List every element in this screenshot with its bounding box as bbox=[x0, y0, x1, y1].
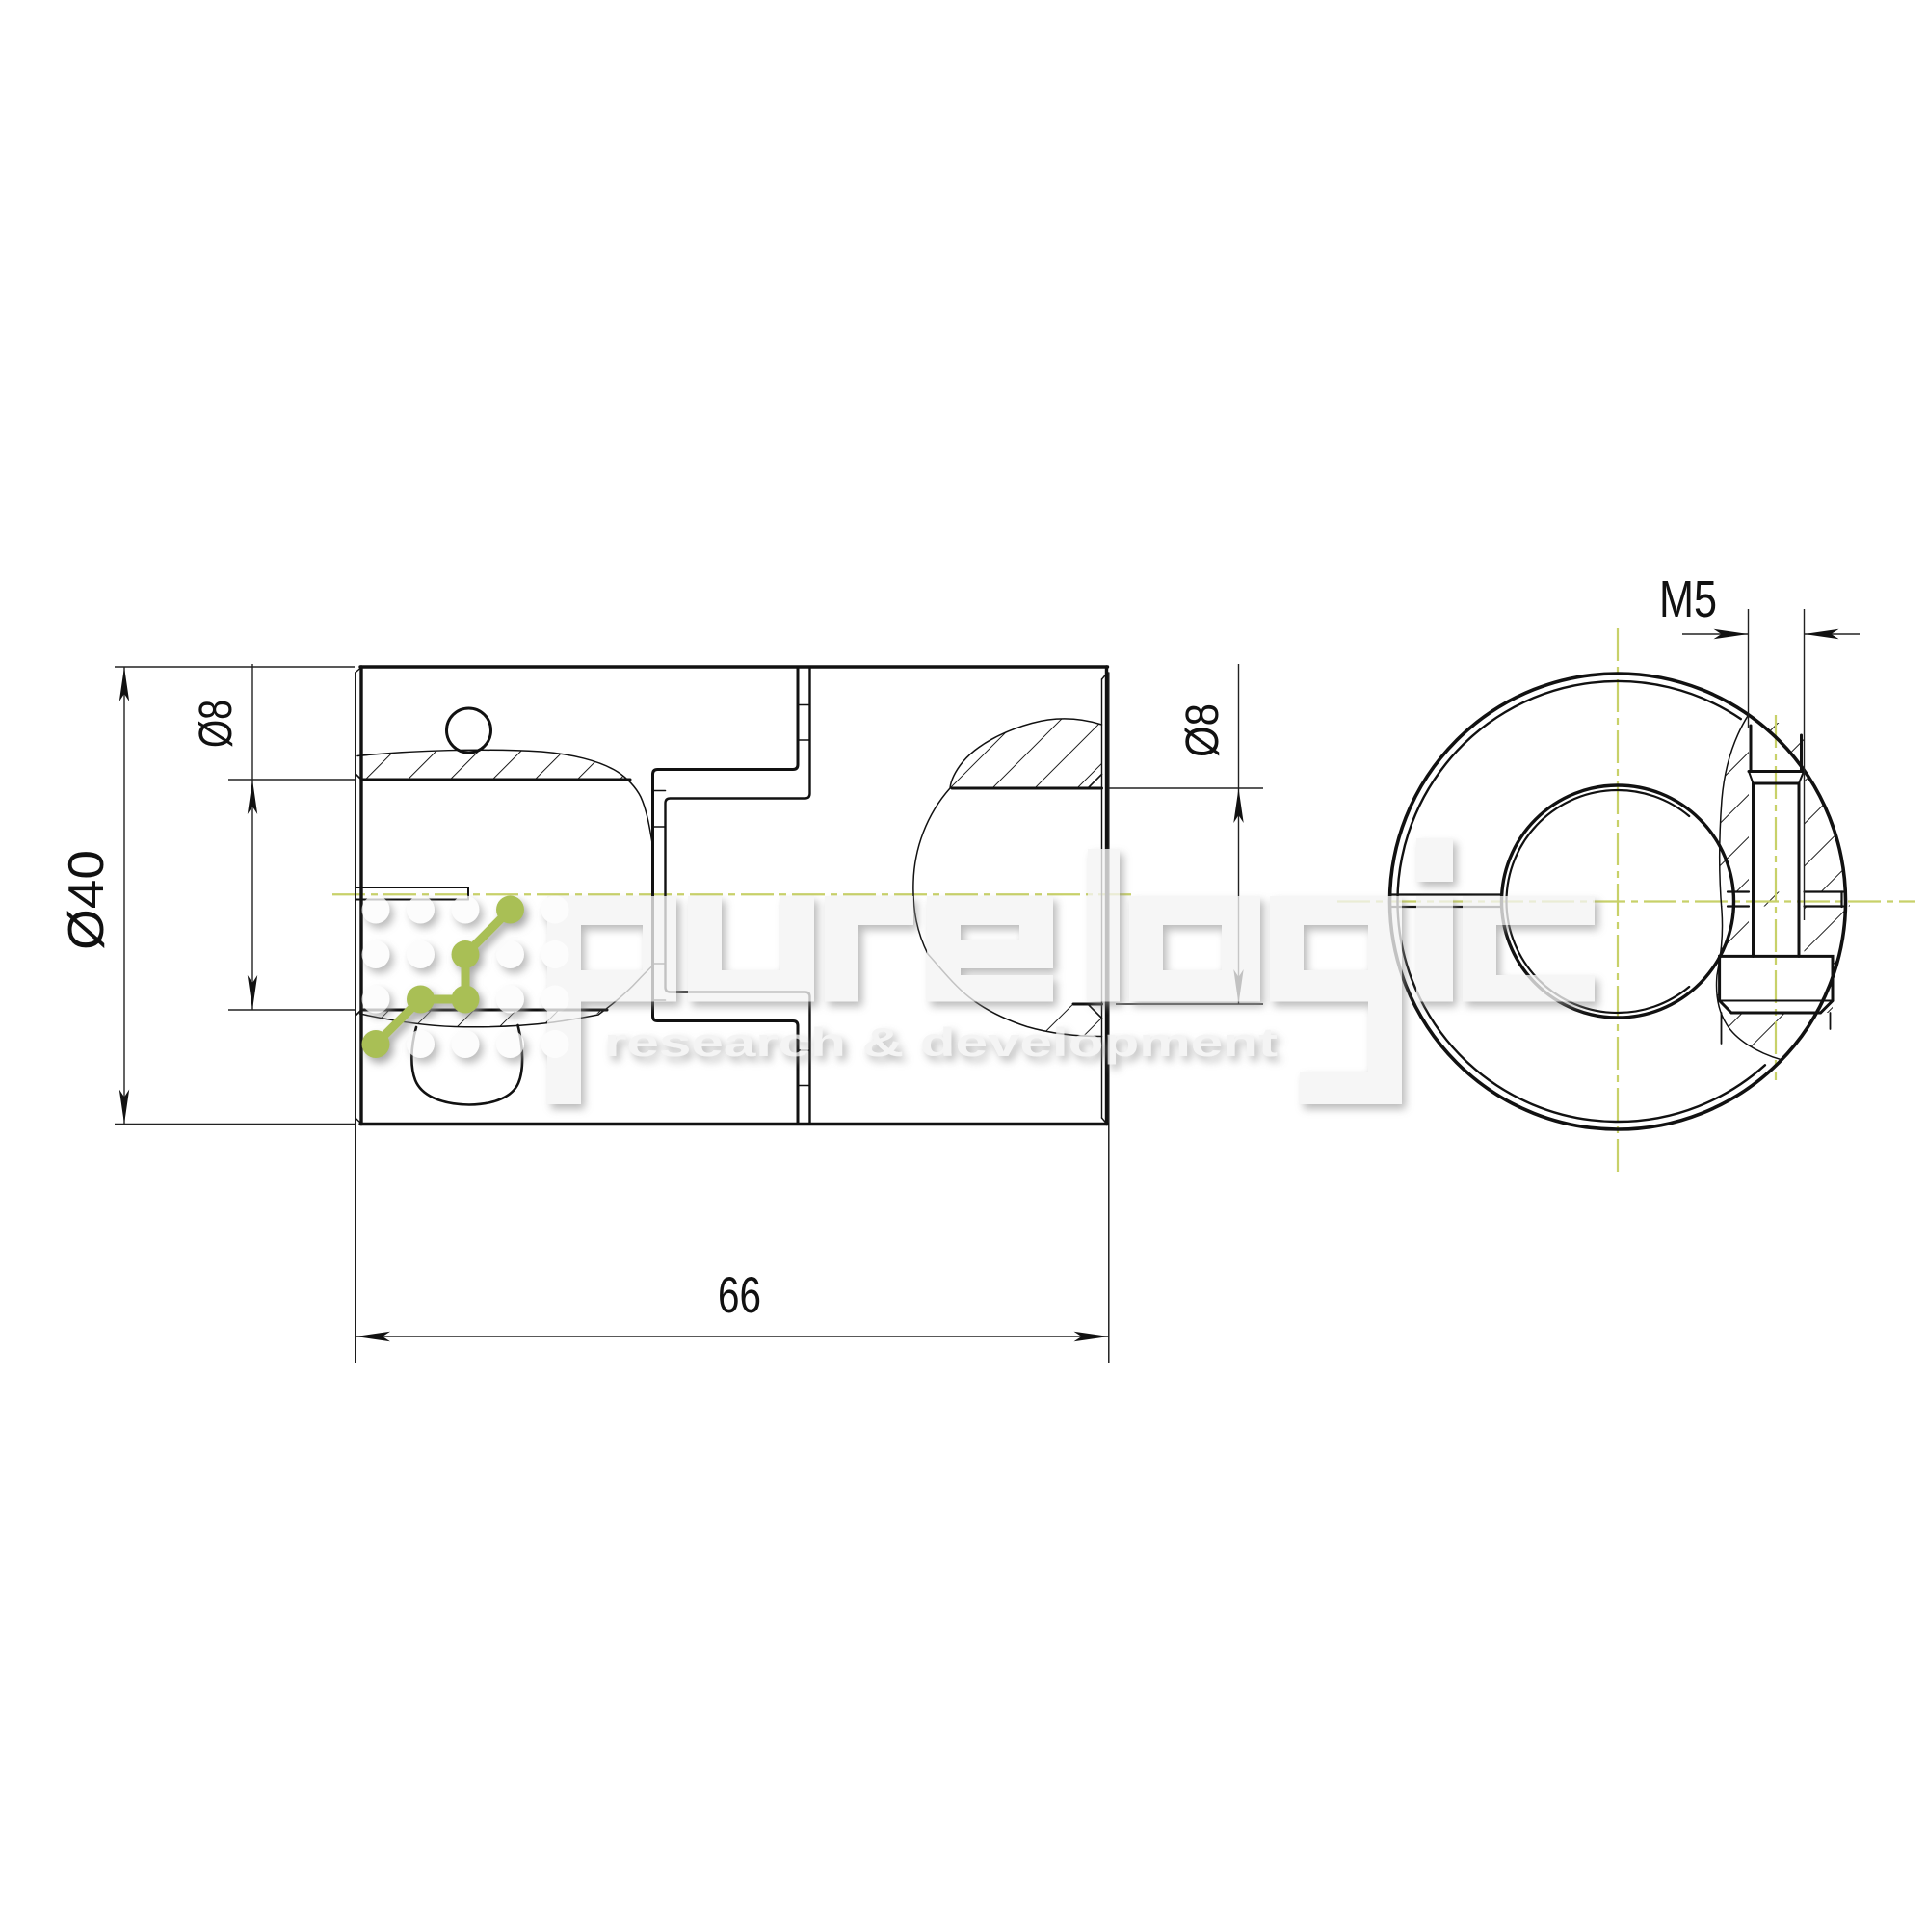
svg-text:M5: M5 bbox=[1659, 570, 1717, 628]
svg-text:Ø40: Ø40 bbox=[59, 850, 115, 950]
svg-text:66: 66 bbox=[718, 1267, 761, 1324]
svg-text:Ø8: Ø8 bbox=[1177, 703, 1228, 757]
svg-text:Ø8: Ø8 bbox=[191, 700, 242, 748]
svg-text:research & development: research & development bbox=[604, 1019, 1278, 1065]
